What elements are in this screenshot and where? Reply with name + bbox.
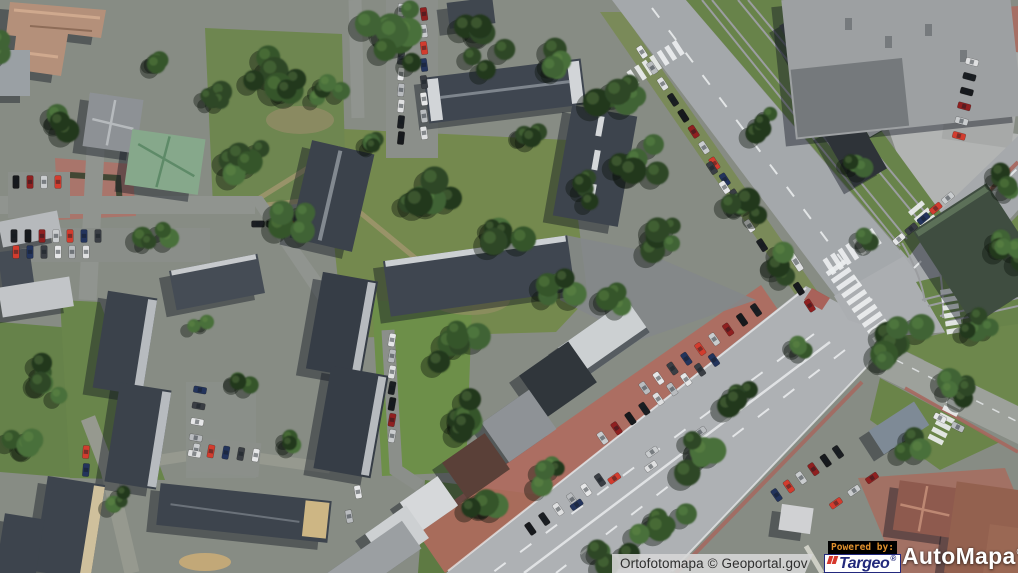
targeo-mark-icon xyxy=(828,556,838,565)
powered-by-label: Powered by: xyxy=(831,542,894,553)
attribution-text: Ortofotomapa © Geoportal.gov.pl xyxy=(620,556,821,571)
targeo-wordmark: Targeo xyxy=(839,556,889,572)
aerial-imagery[interactable] xyxy=(0,0,1018,573)
map-attribution: Ortofotomapa © Geoportal.gov.pl xyxy=(612,554,813,573)
targeo-logo[interactable]: Targeo ® xyxy=(824,554,901,573)
registered-symbol: ® xyxy=(890,554,896,563)
map-viewport: Ortofotomapa © Geoportal.gov.pl Powered … xyxy=(0,0,1018,573)
automapa-wordmark: AutoMapa xyxy=(902,543,1016,569)
automapa-logo[interactable]: AutoMapa® xyxy=(902,543,1018,570)
powered-by-badge: Powered by: xyxy=(828,541,897,554)
